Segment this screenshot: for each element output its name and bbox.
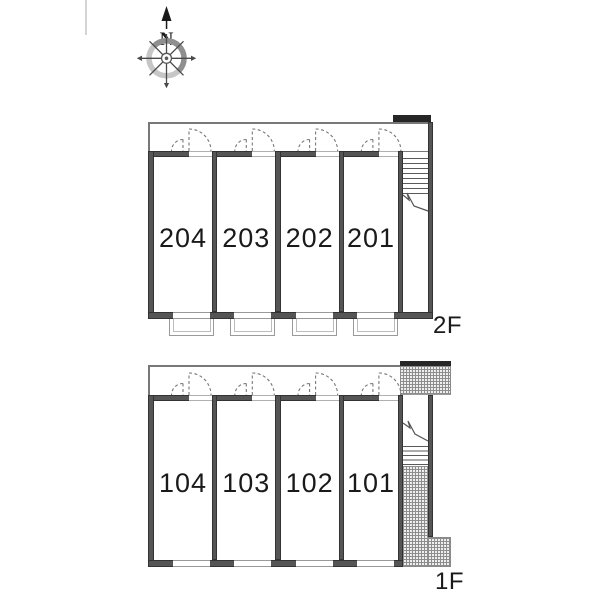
window-opening xyxy=(296,560,333,567)
window-opening xyxy=(357,560,394,567)
floorplan-canvas: N xyxy=(0,0,600,600)
room-number-label: 103 xyxy=(211,469,281,497)
ground-hatch-extension xyxy=(428,537,451,567)
room-number-label: 101 xyxy=(336,469,406,497)
floorplan-1f: 104 103 102 101 1F xyxy=(0,0,600,600)
wall-right xyxy=(428,395,433,537)
stair-break-line xyxy=(398,418,433,444)
door-opening xyxy=(189,395,212,401)
room-number-label: 102 xyxy=(275,469,345,497)
stair-treads xyxy=(403,446,428,466)
unit-door-arcs xyxy=(172,373,401,395)
floor-label-1f: 1F xyxy=(435,568,464,596)
door-opening xyxy=(379,395,398,401)
window-opening xyxy=(173,560,210,567)
door-opening xyxy=(316,395,339,401)
window-opening xyxy=(234,560,271,567)
door-opening xyxy=(252,395,275,401)
ground-hatch-column xyxy=(403,466,428,567)
room-number-label: 104 xyxy=(148,469,218,497)
